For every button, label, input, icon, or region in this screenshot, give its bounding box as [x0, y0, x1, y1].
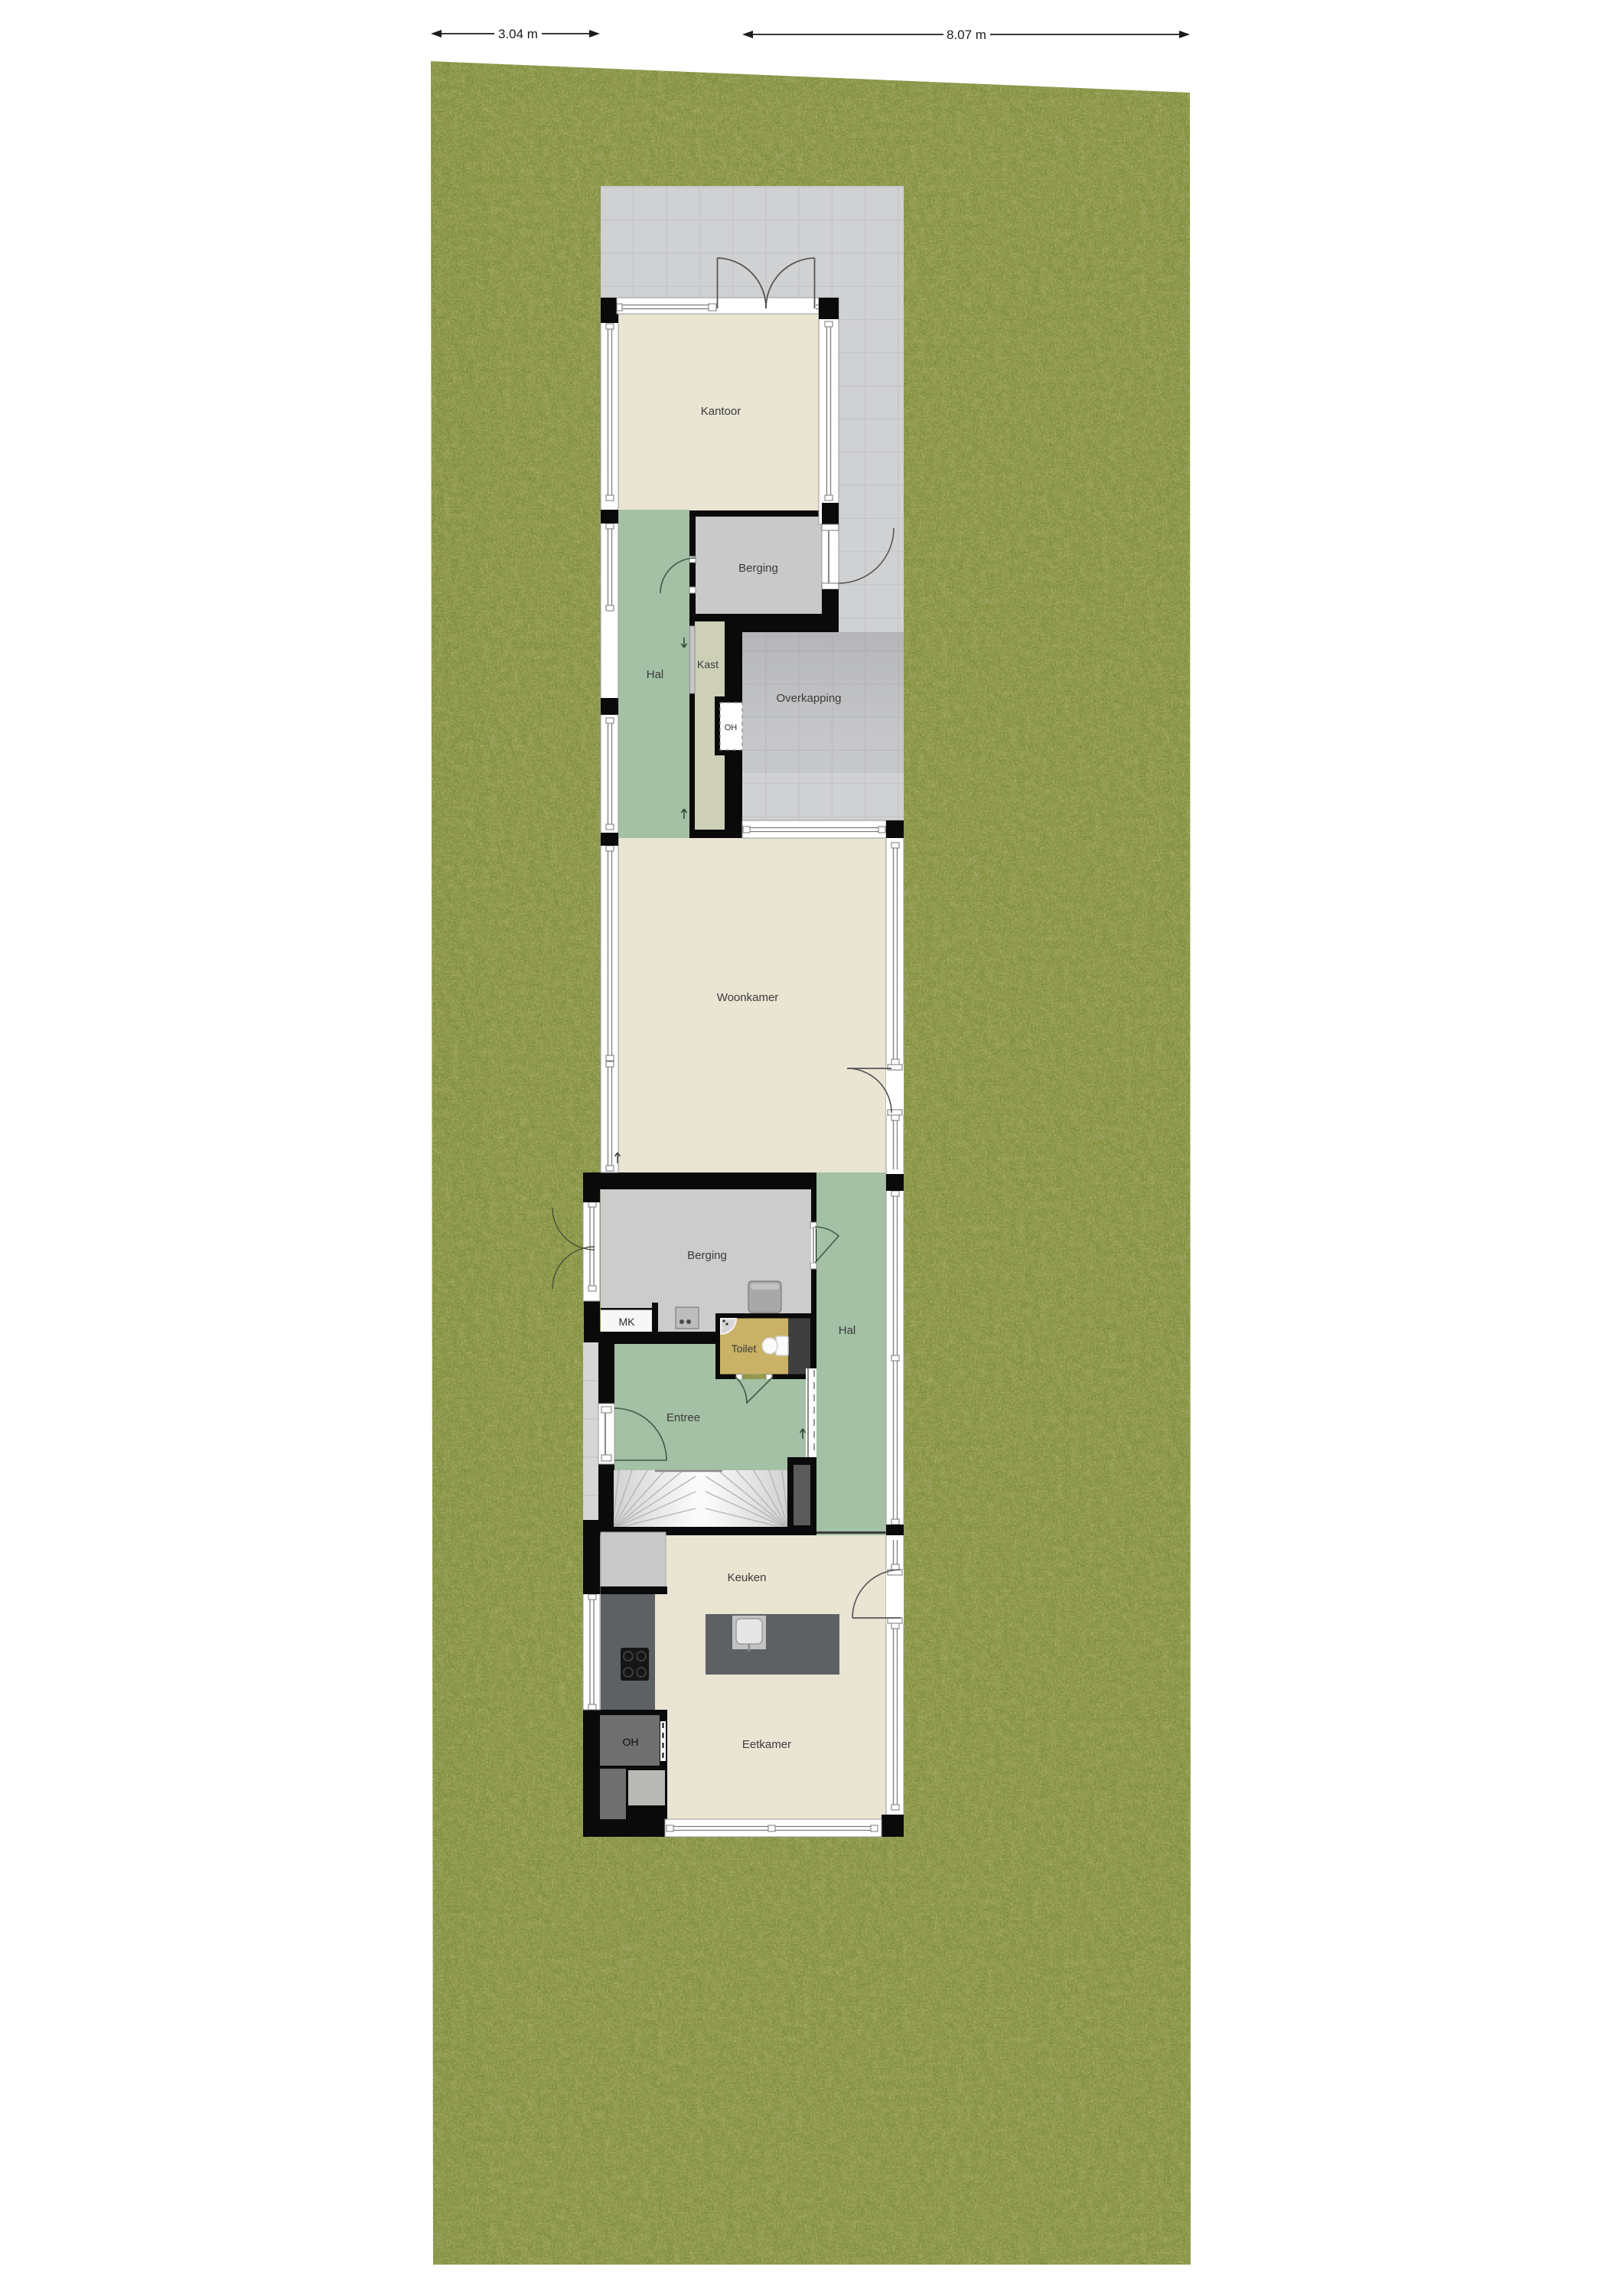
svg-text:OH: OH [725, 723, 738, 732]
svg-text:Woonkamer: Woonkamer [717, 991, 779, 1004]
svg-text:Berging: Berging [687, 1249, 727, 1262]
svg-text:Berging: Berging [738, 562, 778, 575]
svg-text:MK: MK [619, 1316, 636, 1328]
svg-text:3.04 m: 3.04 m [498, 27, 538, 41]
svg-text:Eetkamer: Eetkamer [742, 1738, 791, 1751]
svg-text:Overkapping: Overkapping [776, 692, 841, 705]
svg-text:8.07 m: 8.07 m [947, 28, 986, 42]
svg-text:Kantoor: Kantoor [701, 405, 741, 418]
svg-text:Entree: Entree [666, 1411, 700, 1424]
svg-text:Hal: Hal [839, 1324, 856, 1337]
svg-text:OH: OH [623, 1736, 639, 1748]
svg-text:Toilet: Toilet [732, 1342, 757, 1355]
svg-text:Keuken: Keuken [728, 1571, 767, 1584]
svg-text:Hal: Hal [647, 668, 664, 681]
svg-text:Kast: Kast [697, 658, 719, 670]
